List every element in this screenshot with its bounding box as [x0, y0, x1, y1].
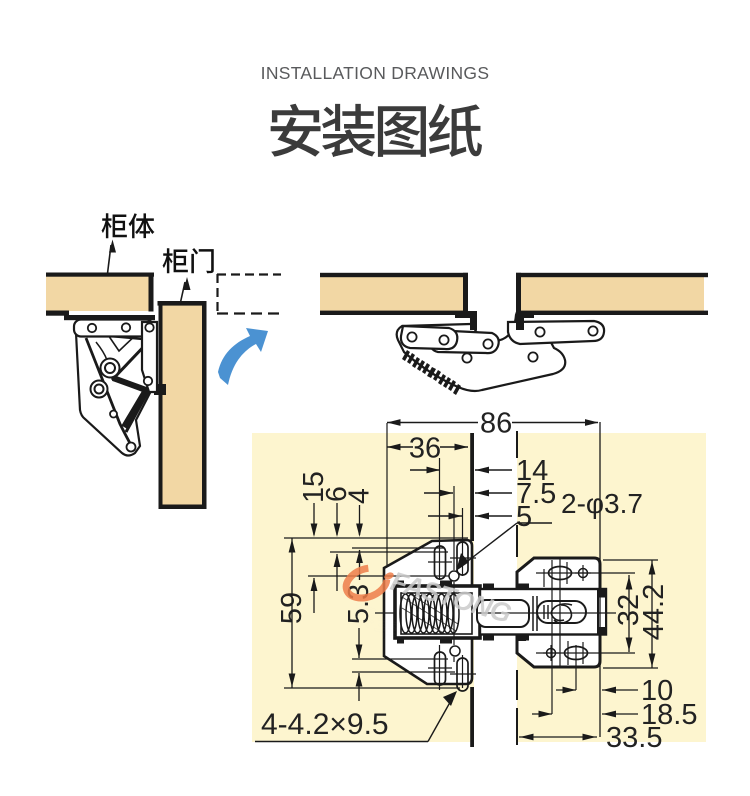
svg-text:INSTALLATION DRAWINGS: INSTALLATION DRAWINGS [261, 63, 490, 83]
svg-text:4-4.2×9.5: 4-4.2×9.5 [261, 708, 389, 741]
svg-text:2-φ3.7: 2-φ3.7 [561, 488, 643, 519]
svg-text:4: 4 [344, 488, 376, 504]
svg-text:86: 86 [480, 408, 512, 440]
svg-text:36: 36 [409, 433, 441, 465]
svg-text:44.2: 44.2 [638, 584, 670, 640]
svg-text:5: 5 [516, 501, 532, 533]
svg-text:33.5: 33.5 [606, 722, 662, 754]
